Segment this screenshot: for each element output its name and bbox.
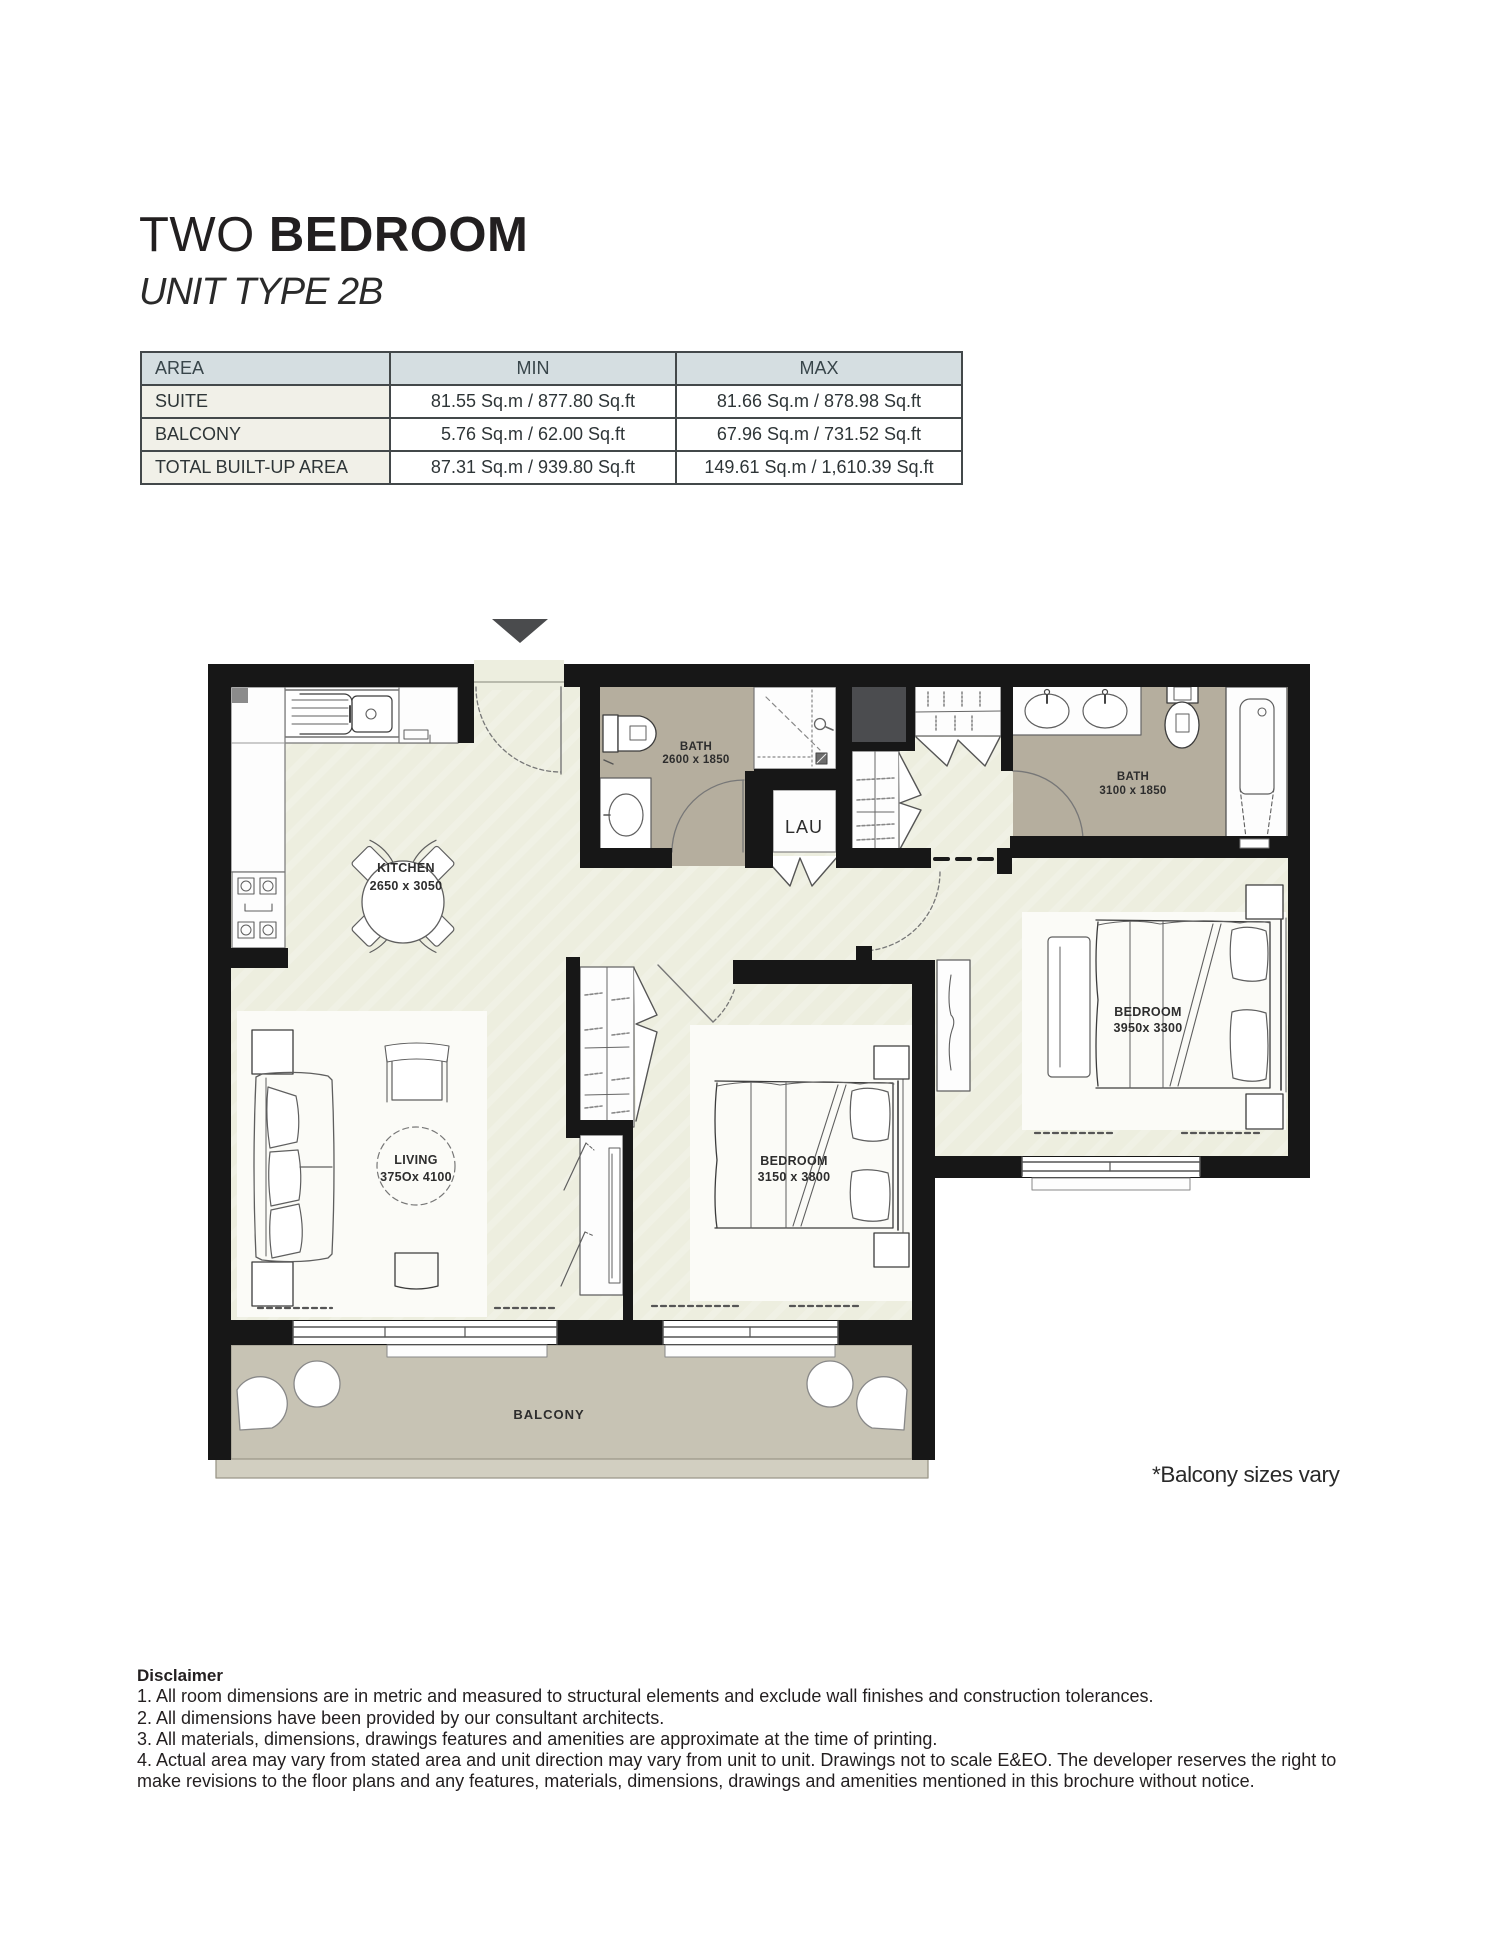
svg-text:LAU: LAU	[785, 817, 823, 837]
svg-text:3950x 3300: 3950x 3300	[1113, 1021, 1182, 1035]
svg-text:KITCHEN: KITCHEN	[377, 861, 435, 875]
svg-text:LIVING: LIVING	[394, 1153, 437, 1167]
svg-text:BATH: BATH	[1117, 771, 1149, 783]
svg-text:2600 x 1850: 2600 x 1850	[662, 754, 729, 766]
svg-text:BEDROOM: BEDROOM	[760, 1154, 827, 1168]
svg-text:3100 x 1850: 3100 x 1850	[1099, 785, 1166, 797]
svg-text:BEDROOM: BEDROOM	[1114, 1005, 1181, 1019]
svg-text:BATH: BATH	[680, 741, 712, 753]
svg-text:BALCONY: BALCONY	[513, 1407, 584, 1422]
svg-text:3150 x 3800: 3150 x 3800	[758, 1170, 831, 1184]
svg-text:2650 x 3050: 2650 x 3050	[370, 879, 443, 893]
svg-text:375Ox 4100: 375Ox 4100	[380, 1170, 452, 1184]
